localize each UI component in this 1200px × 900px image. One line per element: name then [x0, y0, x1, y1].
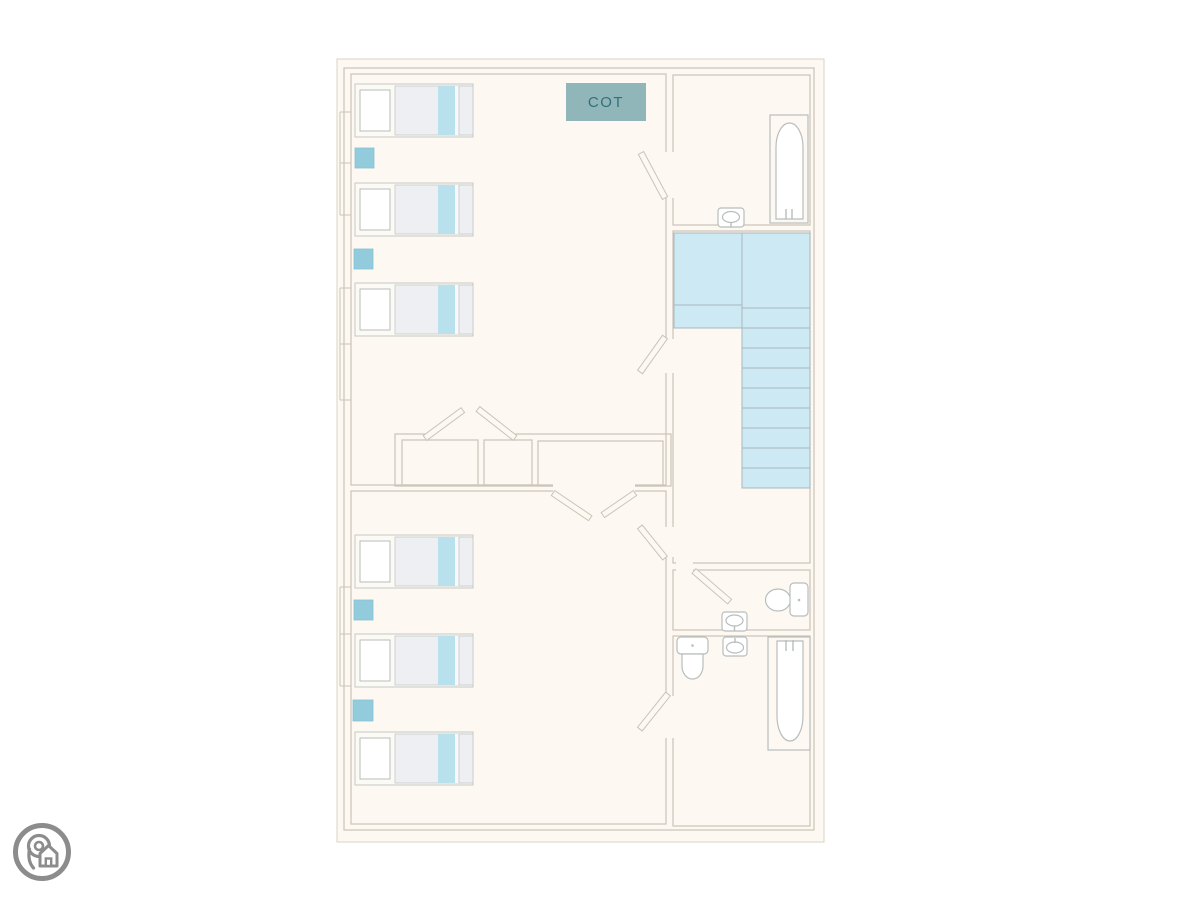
bed: [355, 634, 473, 687]
cot-label: COT: [588, 94, 624, 111]
logo-pin-dot: [35, 842, 43, 850]
bed: [355, 283, 473, 336]
bedside-table: [354, 600, 373, 620]
stair-step: [742, 328, 810, 348]
stair-step: [742, 308, 810, 328]
sink-icon: [722, 612, 747, 631]
bedside-table: [354, 249, 373, 269]
sink-icon: [723, 637, 747, 656]
door-opening: [553, 483, 635, 496]
stair-step: [742, 468, 810, 488]
stair-landing: [742, 233, 810, 308]
stair-step: [742, 388, 810, 408]
bed: [355, 183, 473, 236]
bed: [355, 732, 473, 785]
stair-step: [742, 368, 810, 388]
bath-icon: [770, 115, 808, 223]
logo-house-door: [46, 859, 51, 867]
bedside-table: [355, 148, 374, 168]
stair-step: [742, 348, 810, 368]
stair-step: [674, 305, 742, 328]
bath-icon: [768, 637, 810, 750]
stair-step: [742, 408, 810, 428]
stair-step: [742, 428, 810, 448]
door-opening: [676, 561, 693, 572]
cot: COT: [566, 83, 646, 121]
bed: [355, 84, 473, 137]
bed: [355, 535, 473, 588]
sink-icon: [718, 208, 744, 227]
location-pin-house-icon: [16, 826, 69, 879]
bedside-table: [353, 700, 373, 721]
stair-landing: [674, 233, 742, 305]
floor-plan: COT: [0, 0, 1200, 900]
stair-step: [742, 448, 810, 468]
